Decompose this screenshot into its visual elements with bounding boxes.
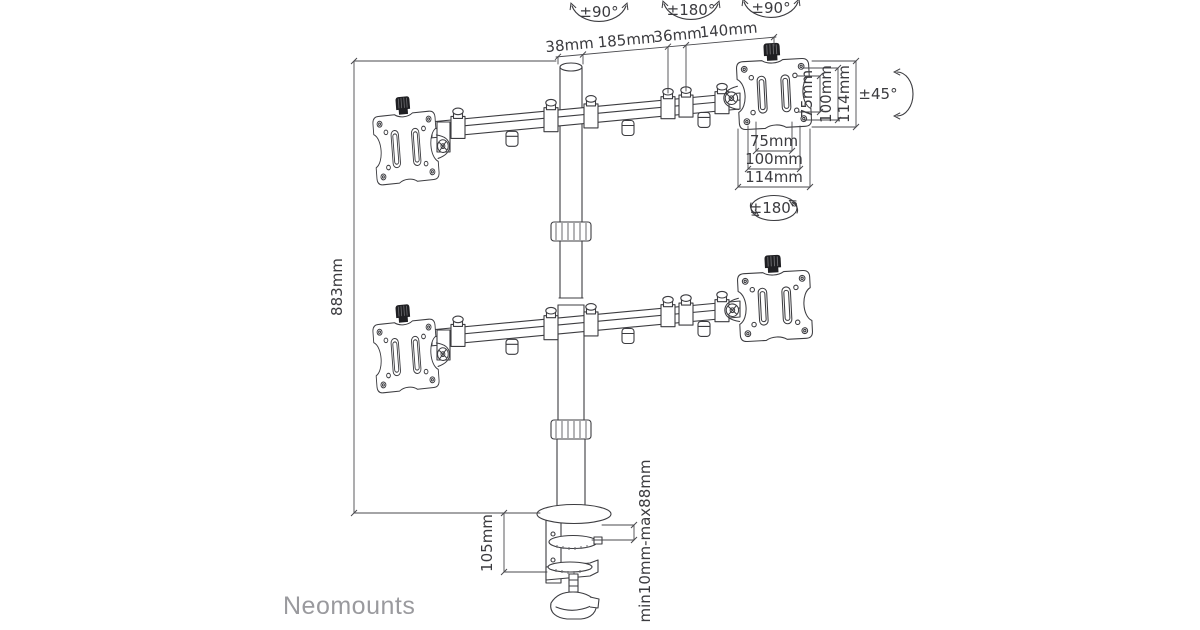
rotation-annotations-top: ±90° ±180° ±90°: [572, 0, 798, 21]
clamp-knob: [551, 592, 599, 619]
pole-swivel-angle: ±90°: [579, 3, 618, 21]
dim-pole-diameter: 38mm: [545, 34, 595, 56]
vesa-plate-lower-right: [722, 254, 813, 343]
diagram-canvas: 38mm 185mm 36mm 140mm ±90° ±180° ±90° 88…: [0, 0, 1200, 630]
technical-diagram-page: 38mm 185mm 36mm 140mm ±90° ±180° ±90° 88…: [0, 0, 1200, 630]
tilt-arc: [897, 72, 913, 116]
dimension-clamp-height: 105mm: [478, 510, 547, 575]
clamp-pad: [549, 536, 602, 551]
dim-joint-width: 36mm: [653, 24, 703, 46]
pole-collar-upper: [551, 222, 591, 241]
dimension-vesa-horizontal: 75mm 100mm 114mm: [735, 122, 813, 190]
pole-top-cap: [560, 63, 582, 71]
dim-arm-outer: 140mm: [699, 19, 758, 42]
dim-clamp-height-label: 105mm: [478, 514, 496, 572]
pole-upper-tube: [560, 67, 582, 222]
dim-column-height-label: 883mm: [328, 258, 346, 316]
screen-rotation-annotation: ±180°: [750, 196, 799, 221]
dim-arm-inner: 185mm: [597, 29, 656, 52]
pole-collar-lower: [551, 420, 591, 439]
arm-swivel-angle: ±180°: [667, 1, 716, 19]
vesa-h-75: 75mm: [750, 132, 798, 150]
tilt-angle: ±45°: [858, 85, 897, 103]
tilt-annotation: ±45°: [858, 72, 913, 116]
vesa-h-114: 114mm: [745, 168, 803, 186]
head-swivel-angle: ±90°: [751, 0, 790, 17]
vesa-v-75: 75mm: [798, 70, 816, 118]
screen-rotation-angle: ±180°: [750, 199, 799, 217]
vesa-v-100: 100mm: [817, 65, 835, 123]
vesa-h-100: 100mm: [745, 150, 803, 168]
vesa-v-114: 114mm: [835, 65, 853, 123]
dim-clamp-range-label: min10mm-max88mm: [636, 459, 654, 622]
desk-clamp: [537, 505, 611, 620]
clamp-top-plate: [537, 505, 611, 524]
brand-logo: Neomounts: [283, 592, 415, 620]
